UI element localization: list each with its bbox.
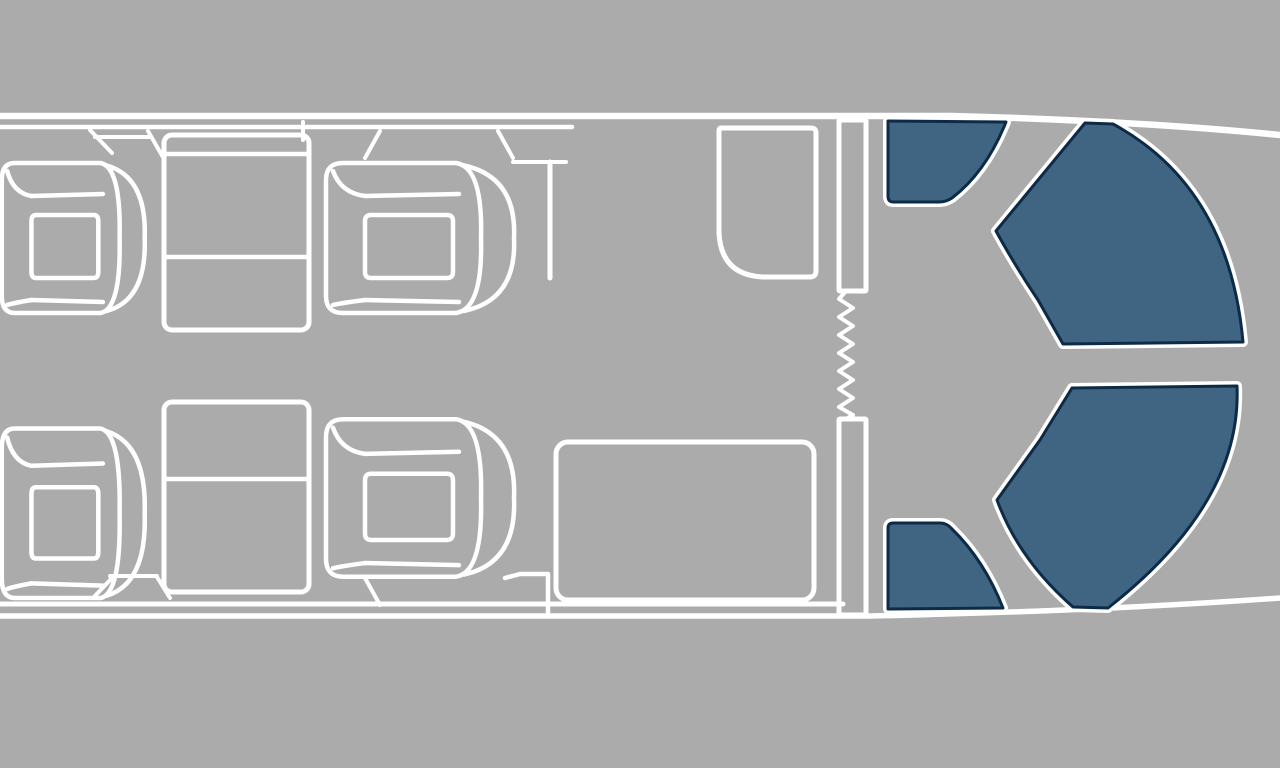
partition-wall-lower [839,419,866,615]
chair-cushion [31,215,98,278]
chair-body-outline [2,429,120,599]
window-bay-line-top-left [90,130,112,153]
table-forward [164,135,309,330]
floorplan-svg [0,0,1280,768]
chair-armrest-seam-bottom [31,583,102,585]
aft-seat-top-right[interactable] [996,123,1243,344]
partition-wall-upper [839,120,866,291]
lavatory-cabinet [719,128,816,277]
chair-body-outline [2,163,120,313]
table-aft [164,402,309,592]
chair-corner-seam-bottom [7,300,31,305]
cabin-floorplan [0,0,1280,768]
window-bay-line-top-chair2 [365,131,380,158]
chair-corner-seam-bottom [333,563,365,568]
chair-corner-seam-top [333,428,365,454]
club-chair-forward-left-top[interactable] [2,163,145,313]
window-bay-line-top-right [498,131,513,158]
club-chair-forward-left-bottom[interactable] [2,429,145,599]
curtain-zigzag [839,291,853,419]
chair-armrest-seam-top [365,452,459,454]
chair-corner-seam-bottom [7,583,31,589]
chair-corner-seam-top [7,438,31,466]
chair-body-outline [326,163,481,313]
chair-cushion [365,474,453,540]
aft-ledge-wall [505,574,548,614]
chair-armrest-seam-top [31,194,102,196]
club-chair-forward-right-top[interactable] [326,163,514,313]
chair-armrest-seam-bottom [365,563,459,565]
club-chair-forward-right-bottom[interactable] [326,419,514,577]
chair-backrest-outer-band [105,431,145,596]
chair-backrest-outer-band [462,165,514,311]
chair-corner-seam-top [7,171,31,196]
chair-cushion [31,487,98,558]
chair-corner-seam-top [333,171,365,196]
chair-armrest-seam-top [365,194,459,196]
chair-cushion [365,215,453,278]
chair-corner-seam-bottom [333,300,365,305]
divan-sofa [556,442,814,600]
chair-armrest-seam-bottom [31,300,102,302]
chair-backrest-outer-band [105,165,145,311]
chair-armrest-seam-bottom [365,300,459,302]
chair-backrest-outer-band [462,421,514,574]
chair-body-outline [326,419,481,577]
aft-seat-bottom-right[interactable] [997,386,1237,608]
chair-armrest-seam-top [31,464,102,466]
window-bay-line-bottom-chair4 [365,578,380,605]
